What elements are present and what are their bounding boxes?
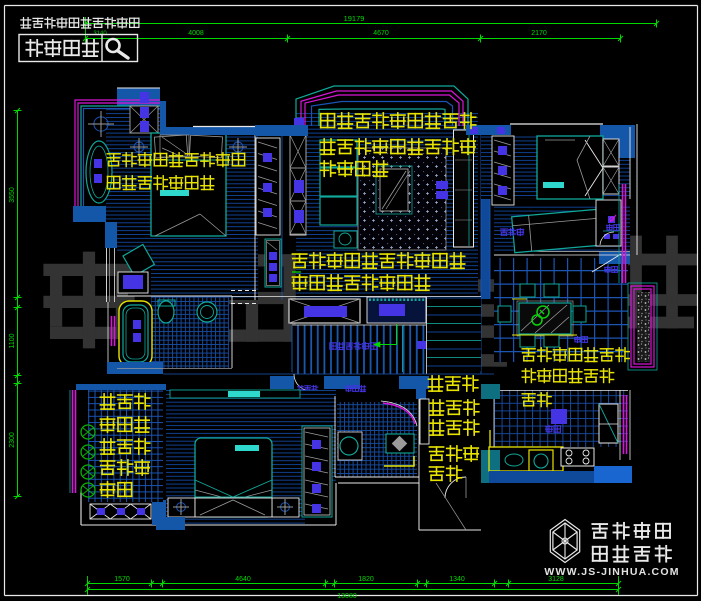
svg-text:1820: 1820 [358,576,374,583]
svg-text:1570: 1570 [114,576,130,583]
svg-text:2300: 2300 [9,432,16,448]
svg-text:4640: 4640 [235,576,251,583]
svg-text:4670: 4670 [373,30,389,37]
svg-text:2170: 2170 [531,30,547,37]
svg-text:19179: 19179 [344,14,365,23]
svg-text:4008: 4008 [188,30,204,37]
svg-text:1340: 1340 [449,576,465,583]
svg-text:1100: 1100 [9,333,16,348]
svg-text:WWW.JS-JINHUA.COM: WWW.JS-JINHUA.COM [544,566,679,578]
svg-text:3550: 3550 [9,187,16,203]
svg-text:13080: 13080 [337,593,357,600]
